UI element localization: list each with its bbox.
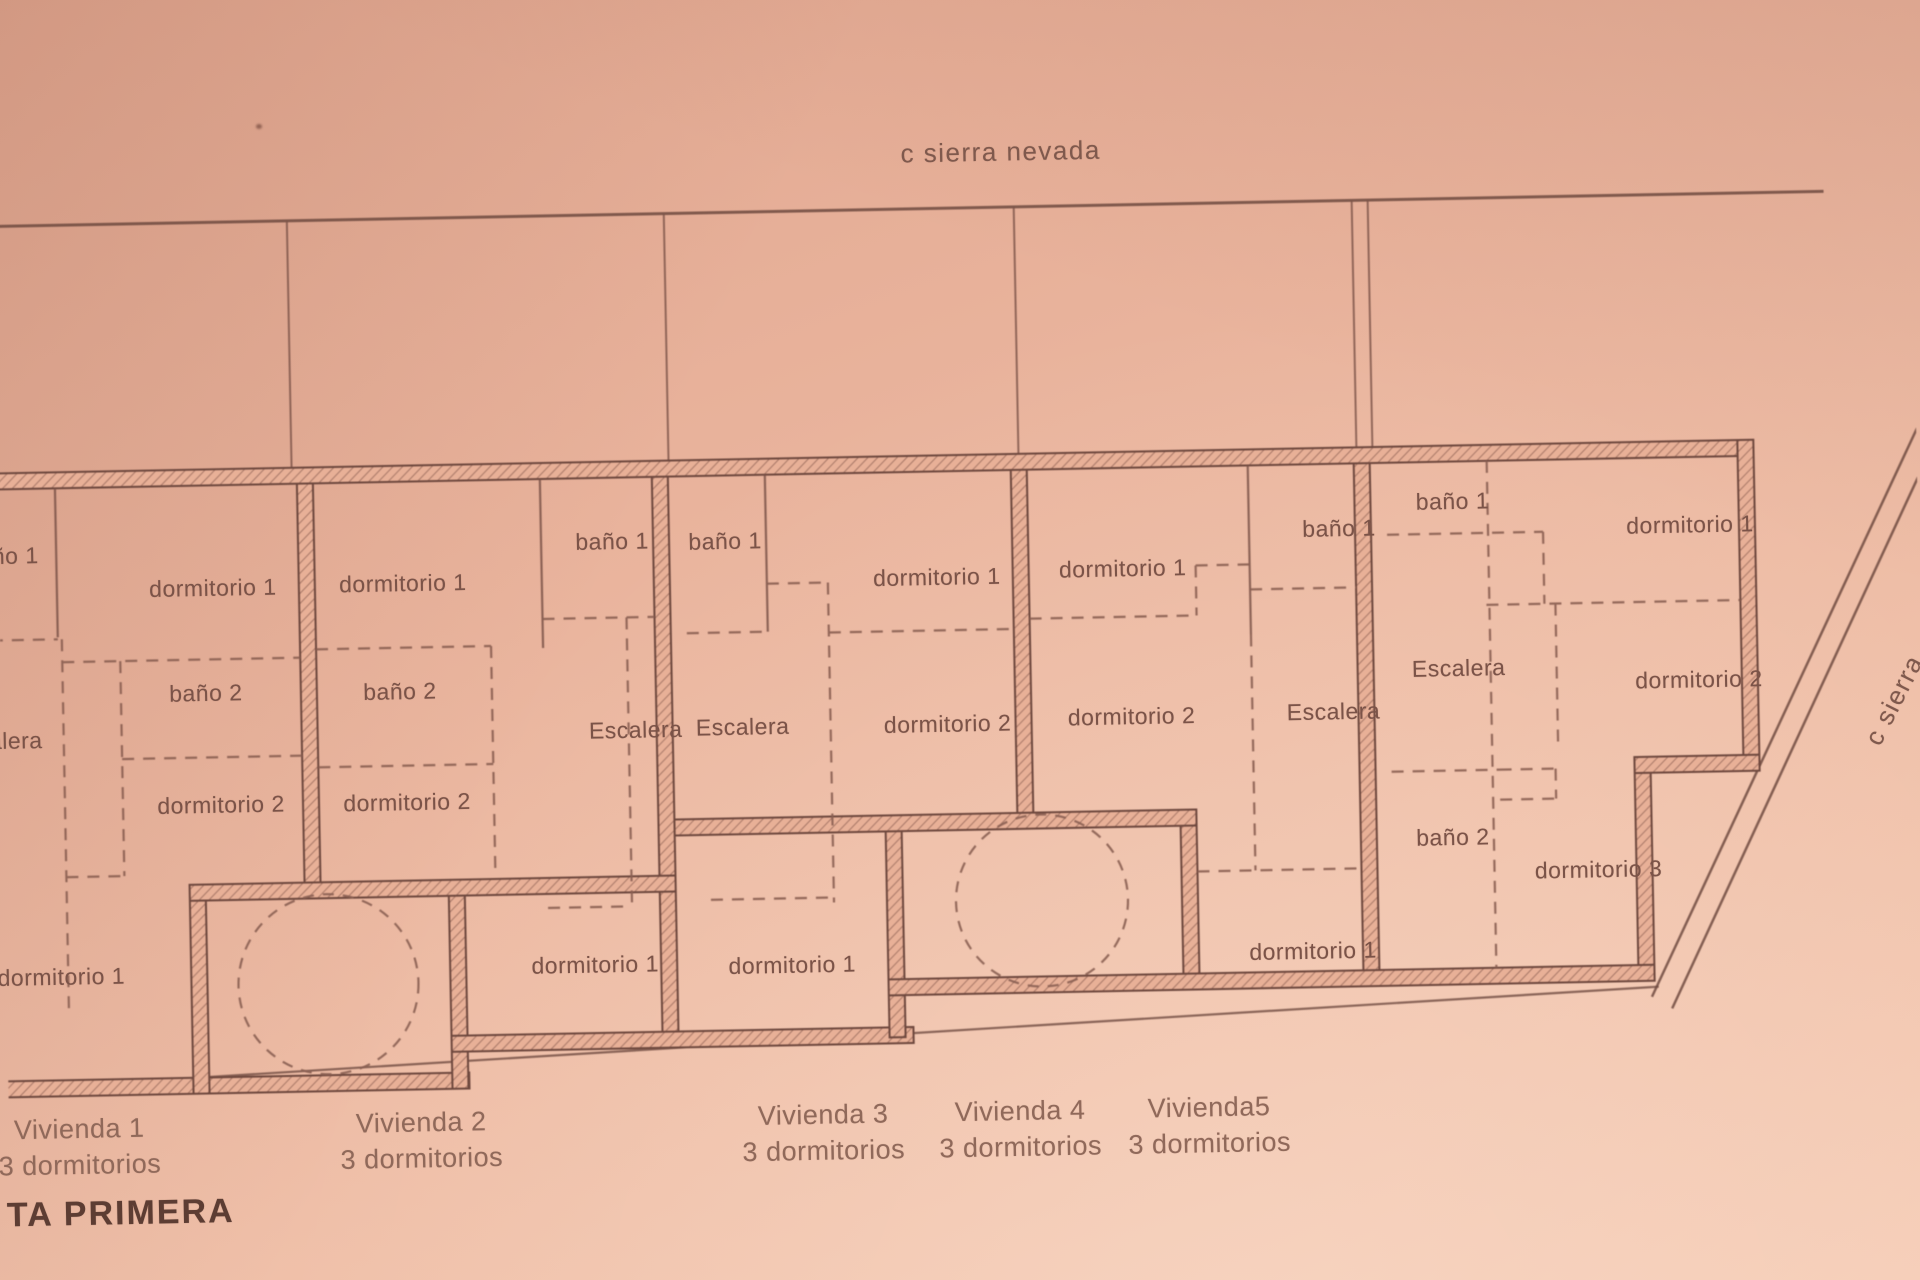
caption-vivienda-4-name: Vivienda 4 xyxy=(938,1092,1101,1131)
room-label-v2-dormitorio1: dormitorio 1 xyxy=(339,569,467,598)
room-label-v3-bano1: baño 1 xyxy=(688,527,762,555)
caption-vivienda-5-name: Vivienda5 xyxy=(1127,1089,1290,1128)
street-label-top: c sierra nevada xyxy=(900,135,1101,170)
room-label-v1-escalera: alera xyxy=(0,727,43,755)
caption-vivienda-3-name: Vivienda 3 xyxy=(741,1096,904,1135)
room-label-v5-escalera: Escalera xyxy=(1412,654,1506,683)
room-label-v3-escalera: Escalera xyxy=(696,713,790,742)
floor-plan-drawing: c sierra nevada c sierra ño 1 dormitorio… xyxy=(0,0,1920,1280)
room-label-v2-bano2: baño 2 xyxy=(363,678,437,706)
room-label-v4-bano1: baño 1 xyxy=(1302,515,1376,543)
caption-vivienda-3-bedrooms: 3 dormitorios xyxy=(742,1132,905,1171)
room-label-v3-dormitorio1-lower: dormitorio 1 xyxy=(728,951,856,980)
caption-vivienda-4-bedrooms: 3 dormitorios xyxy=(939,1128,1102,1167)
room-label-v1-dormitorio1: dormitorio 1 xyxy=(149,574,277,603)
room-label-v2-bano1: baño 1 xyxy=(575,527,649,555)
room-label-v3-dormitorio2: dormitorio 2 xyxy=(884,710,1012,739)
caption-vivienda-1: Vivienda 1 3 dormitorios xyxy=(0,1110,162,1184)
room-label-v2-dormitorio1-lower: dormitorio 1 xyxy=(531,950,659,979)
room-label-v4-dormitorio1-lower: dormitorio 1 xyxy=(1249,937,1377,966)
caption-vivienda-2-bedrooms: 3 dormitorios xyxy=(340,1139,503,1178)
room-label-v2-dormitorio2: dormitorio 2 xyxy=(343,788,471,817)
caption-vivienda-4: Vivienda 4 3 dormitorios xyxy=(938,1092,1102,1166)
caption-vivienda-1-name: Vivienda 1 xyxy=(0,1110,161,1149)
room-label-v4-dormitorio1: dormitorio 1 xyxy=(1059,554,1187,583)
room-label-v1-bano1: ño 1 xyxy=(0,542,39,570)
room-label-v4-escalera: Escalera xyxy=(1286,697,1380,726)
room-label-v1-bano2: baño 2 xyxy=(169,679,243,707)
room-label-v1-dormitorio2: dormitorio 2 xyxy=(157,790,285,819)
plan-title: TA PRIMERA xyxy=(7,1192,235,1235)
room-label-v3-dormitorio1: dormitorio 1 xyxy=(873,563,1001,592)
caption-vivienda-5-bedrooms: 3 dormitorios xyxy=(1128,1124,1291,1163)
room-label-v2-escalera: Escalera xyxy=(589,716,683,745)
room-label-v5-bano2: baño 2 xyxy=(1416,823,1490,851)
room-label-v4-dormitorio2: dormitorio 2 xyxy=(1068,702,1196,731)
room-label-v5-dormitorio2: dormitorio 2 xyxy=(1635,665,1763,694)
caption-vivienda-2: Vivienda 2 3 dormitorios xyxy=(340,1104,504,1178)
caption-vivienda-3: Vivienda 3 3 dormitorios xyxy=(741,1096,905,1170)
floor-plan-photo: c sierra nevada c sierra ño 1 dormitorio… xyxy=(0,0,1920,1280)
room-label-v5-dormitorio1: dormitorio 1 xyxy=(1626,510,1754,539)
plan-labels: c sierra nevada c sierra ño 1 dormitorio… xyxy=(0,0,1920,1280)
caption-vivienda-2-name: Vivienda 2 xyxy=(340,1104,503,1143)
street-label-right: c sierra xyxy=(1859,650,1920,751)
caption-vivienda-5: Vivienda5 3 dormitorios xyxy=(1127,1089,1291,1163)
room-label-v5-bano1: baño 1 xyxy=(1416,487,1490,515)
room-label-v1-dormitorio1-lower: dormitorio 1 xyxy=(0,963,125,992)
room-label-v5-dormitorio3: dormitorio 3 xyxy=(1535,855,1663,884)
caption-vivienda-1-bedrooms: 3 dormitorios xyxy=(0,1146,162,1185)
